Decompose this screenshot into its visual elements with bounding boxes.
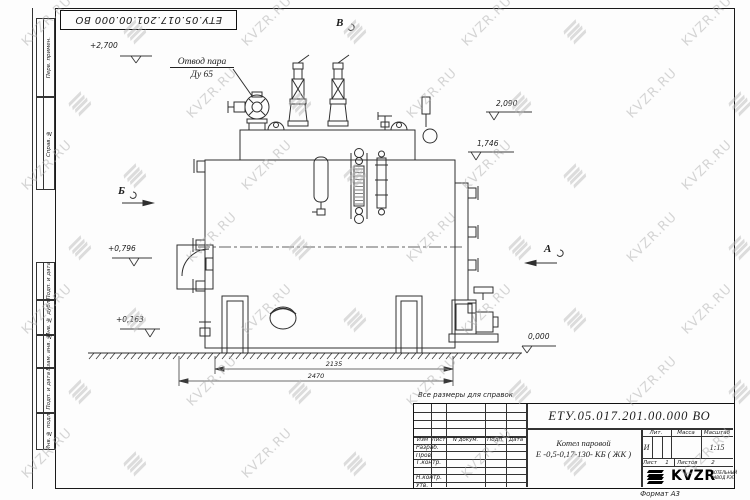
row-utv: Утв. xyxy=(414,483,447,489)
pressure-gauge-siphon xyxy=(422,97,437,143)
kvzr-logo-text: KVZR xyxy=(671,468,716,484)
product-name-line1: Котел паровой xyxy=(556,438,610,449)
safety-valve-1 xyxy=(288,55,309,126)
top-small-valve xyxy=(378,112,392,130)
reference-note: Все размеры для справок xyxy=(418,391,513,399)
col-list: Лист xyxy=(431,437,446,443)
title-block-divider xyxy=(414,467,526,468)
title-block-divider xyxy=(641,466,733,467)
col-podp: Подп. xyxy=(485,437,506,443)
product-name-line2: Е -0,5-0,17-130- КБ ( ЖК ) xyxy=(536,449,631,460)
list-label: Лист xyxy=(643,460,661,466)
elevation-marks xyxy=(112,56,556,353)
elevation-plus2700: +2,700 xyxy=(90,41,118,50)
manhole xyxy=(270,307,296,329)
col-data: Дата xyxy=(506,437,526,443)
blower-unit xyxy=(449,287,498,342)
row-razrab: Разраб. xyxy=(414,445,447,451)
callout-leader xyxy=(233,69,252,96)
kvzr-logo-icon xyxy=(648,469,668,485)
view-label-top: В xyxy=(336,17,343,29)
support-legs xyxy=(222,296,422,353)
level-gauge-cylinder xyxy=(312,157,328,215)
steam-outlet-valve xyxy=(228,92,269,130)
elevation-1746: 1,746 xyxy=(477,139,498,148)
rotated-view-symbol xyxy=(348,24,354,30)
listov-value: 2 xyxy=(702,460,724,466)
listov-label: Листов xyxy=(677,460,701,466)
title-block-divider xyxy=(414,428,526,429)
col-ndokum: N докум. xyxy=(446,437,485,443)
view-label-left: Б xyxy=(118,185,125,197)
masshtab-label: Масштаб xyxy=(701,430,733,436)
elevation-0000: 0,000 xyxy=(528,332,549,341)
title-block: ЕТУ.05.017.201.00.000 ВО Котел паровой Е… xyxy=(413,403,735,489)
massa-label: Масса xyxy=(671,430,701,436)
kvzr-logo-subtext: КОТЕЛЬНЫЙ ЗАВОД РЭП xyxy=(711,471,737,480)
doc-number: ЕТУ.05.017.201.00.000 ВО xyxy=(526,404,733,428)
title-block-divider xyxy=(414,420,526,421)
title-block-divider xyxy=(652,436,653,458)
burner-box xyxy=(177,245,213,340)
scale-value: 1:15 xyxy=(701,437,733,458)
left-wall-nozzles xyxy=(193,159,205,293)
elevation-plus0796: +0,796 xyxy=(108,244,136,253)
lit-value: И xyxy=(641,437,652,458)
drawing-sheet: Перв. примен. Справ. № Подп. и дата Инв.… xyxy=(0,0,750,500)
format-label: Формат А3 xyxy=(600,490,720,498)
view-label-right: А xyxy=(544,243,551,255)
steam-outlet-callout-line1: Отвод пара xyxy=(170,57,234,68)
elevation-plus0163: +0,163 xyxy=(116,315,144,324)
title-block-divider xyxy=(414,412,526,413)
lit-label: Лит. xyxy=(641,430,671,436)
row-prov: Пров. xyxy=(414,453,447,459)
row-tkontr: Т.контр. xyxy=(414,460,447,466)
safety-valve-2 xyxy=(328,55,349,126)
ground-line xyxy=(88,353,522,359)
product-name: Котел паровой Е -0,5-0,17-130- КБ ( ЖК ) xyxy=(527,429,640,469)
gauge-glass xyxy=(375,151,388,215)
row-nkontr: Н.контр. xyxy=(414,475,447,481)
dimension-2470: 2470 xyxy=(296,372,336,380)
list-value: 1 xyxy=(661,460,673,466)
title-block-divider xyxy=(674,458,675,466)
rotated-view-symbol xyxy=(130,192,136,198)
title-block-divider xyxy=(662,436,663,458)
dimension-2135: 2135 xyxy=(314,360,354,368)
col-izm: Изм xyxy=(414,437,431,443)
elevation-2090: 2,090 xyxy=(496,99,517,108)
rotated-view-symbol xyxy=(557,250,563,256)
steam-outlet-callout-line2: Ду 65 xyxy=(177,70,227,80)
